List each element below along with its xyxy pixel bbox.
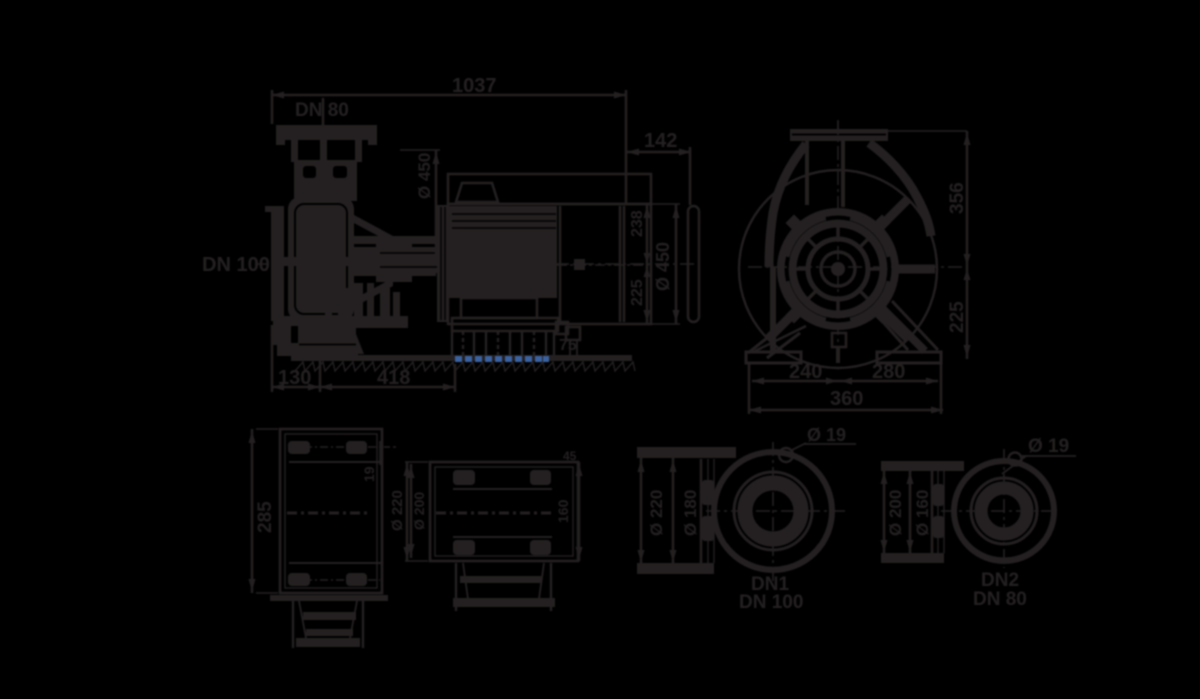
- svg-text:Ø 19: Ø 19: [807, 425, 846, 445]
- svg-text:Ø 450: Ø 450: [415, 153, 434, 199]
- svg-text:280: 280: [872, 361, 905, 383]
- svg-text:DN 100: DN 100: [202, 254, 270, 276]
- svg-text:Ø 200: Ø 200: [886, 490, 905, 536]
- svg-text:225: 225: [629, 279, 646, 306]
- svg-text:DN 80: DN 80: [973, 589, 1027, 610]
- svg-text:19: 19: [361, 466, 377, 482]
- svg-text:Ø 200: Ø 200: [411, 492, 427, 530]
- svg-text:DN2: DN2: [981, 570, 1019, 591]
- svg-text:Ø 220: Ø 220: [389, 490, 406, 531]
- svg-text:142: 142: [644, 130, 677, 152]
- svg-text:360: 360: [830, 388, 863, 410]
- svg-text:Ø 450: Ø 450: [653, 242, 673, 291]
- svg-text:225: 225: [947, 301, 968, 333]
- svg-text:285: 285: [255, 501, 276, 533]
- svg-text:130: 130: [278, 367, 311, 389]
- svg-text:DN 100: DN 100: [739, 592, 803, 613]
- svg-text:418: 418: [377, 367, 410, 389]
- svg-text:238: 238: [629, 210, 646, 237]
- svg-text:45: 45: [563, 449, 577, 463]
- svg-text:Ø 160: Ø 160: [913, 490, 932, 536]
- svg-text:75: 75: [559, 337, 577, 354]
- svg-text:1037: 1037: [452, 75, 497, 97]
- svg-text:Ø 220: Ø 220: [647, 490, 666, 536]
- svg-text:Ø 19: Ø 19: [1028, 436, 1069, 457]
- svg-text:Ø 180: Ø 180: [681, 490, 700, 536]
- svg-text:356: 356: [947, 182, 968, 214]
- svg-text:160: 160: [555, 499, 571, 523]
- svg-text:240: 240: [789, 361, 822, 383]
